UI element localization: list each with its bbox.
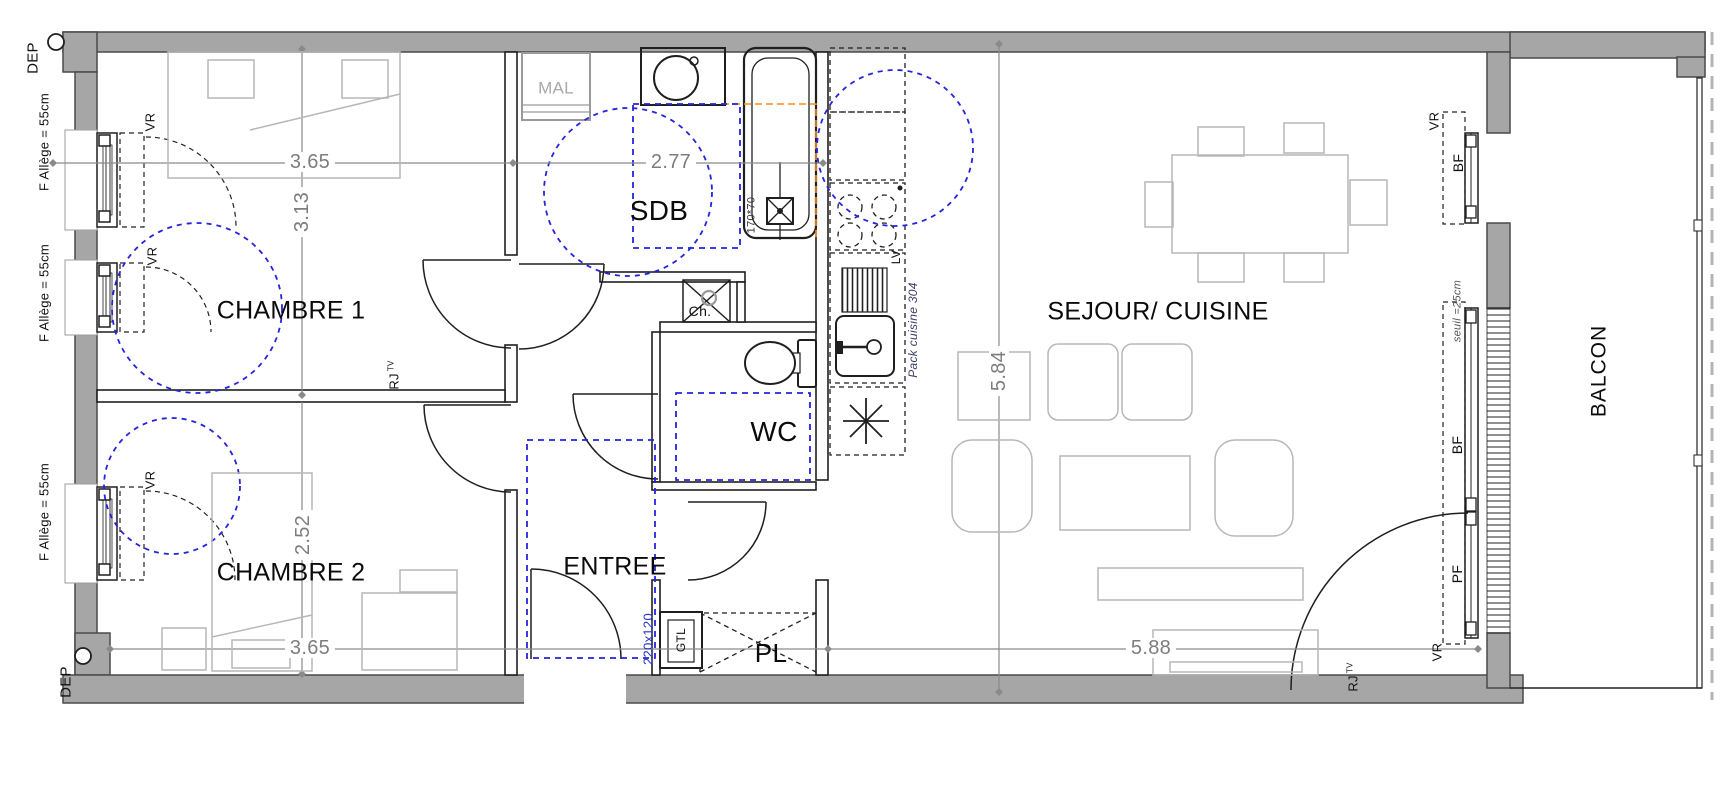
- dim-sdb-width: 2.77: [646, 152, 696, 172]
- window-sill-label-3: F Allège = 55cm: [38, 463, 51, 561]
- washing-machine-label: MAL: [538, 80, 574, 97]
- bathtub-size-label: 170*70: [747, 197, 758, 234]
- room-label-chambre1: CHAMBRE 1: [217, 299, 366, 324]
- window-sill-label-2: F Allège = 55cm: [38, 244, 51, 342]
- room-label-sejour: SEJOUR/ CUISINE: [1047, 300, 1268, 325]
- room-label-sdb: SDB: [630, 197, 688, 225]
- vr-label-5: VR: [1431, 643, 1444, 662]
- dep-bottom-label: DEP: [59, 666, 74, 698]
- tv-text: TV: [386, 360, 395, 371]
- rj-tv-label-2: RJTV: [1346, 662, 1359, 691]
- door-swings: [423, 260, 1468, 690]
- plan-linework: [0, 0, 1732, 800]
- right-windows: [1465, 133, 1478, 638]
- room-label-wc: WC: [750, 418, 797, 446]
- dim-chambre1-depth: 3.13: [292, 187, 312, 237]
- gtl-label: GTL: [675, 628, 687, 652]
- vr-label-4: VR: [1428, 112, 1441, 131]
- vanity-sink: [641, 48, 725, 105]
- bf-label-2: BF: [1450, 436, 1464, 455]
- vr-label-3: VR: [144, 471, 157, 490]
- dep-top-label: DEP: [26, 42, 41, 74]
- toilet: [745, 340, 816, 387]
- sink-drainer: [842, 268, 887, 312]
- rj-text: RJ: [387, 373, 402, 390]
- entry-door-size-label: 220x120: [642, 613, 655, 665]
- bf-label-1: BF: [1451, 154, 1465, 173]
- dishwasher-label: LV: [890, 250, 902, 264]
- stove-dot: [898, 186, 903, 191]
- vr-label-1: VR: [144, 113, 157, 132]
- window-sill-label-1: F Allège = 55cm: [38, 93, 51, 191]
- balcony-threshold-hatch: [1487, 308, 1510, 633]
- pf-label: PF: [1450, 565, 1464, 584]
- floor-plan: DEP DEP F Allège = 55cm F Allège = 55cm …: [0, 0, 1732, 800]
- vr-label-2: VR: [146, 247, 159, 266]
- room-label-chambre2: CHAMBRE 2: [217, 561, 366, 586]
- dim-chambre2-depth: 2.52: [293, 510, 313, 560]
- rj-tv-label-1: RJTV: [387, 360, 400, 389]
- dim-sejour-depth: 5.84: [989, 346, 1009, 396]
- water-heater-label: Ch.: [689, 304, 712, 318]
- fridge-asterisk: [843, 398, 889, 444]
- rj-text: RJ: [1346, 675, 1361, 692]
- left-windows: [97, 133, 117, 580]
- dim-chambre2-width: 3.65: [285, 638, 335, 658]
- tv-text: TV: [1345, 662, 1354, 673]
- room-label-pl: PL: [755, 640, 787, 666]
- kitchen-pack-label: Pack cuisine 304: [907, 282, 919, 378]
- room-label-balcon: BALCON: [1589, 325, 1610, 417]
- dim-sejour-width: 5.88: [1126, 638, 1176, 658]
- threshold-label: seuil =25cm: [1453, 280, 1464, 342]
- entry-door-opening: [524, 673, 626, 705]
- dim-chambre1-width: 3.65: [285, 152, 335, 172]
- interior-walls: [97, 52, 828, 675]
- room-label-entree: ENTREE: [563, 555, 666, 580]
